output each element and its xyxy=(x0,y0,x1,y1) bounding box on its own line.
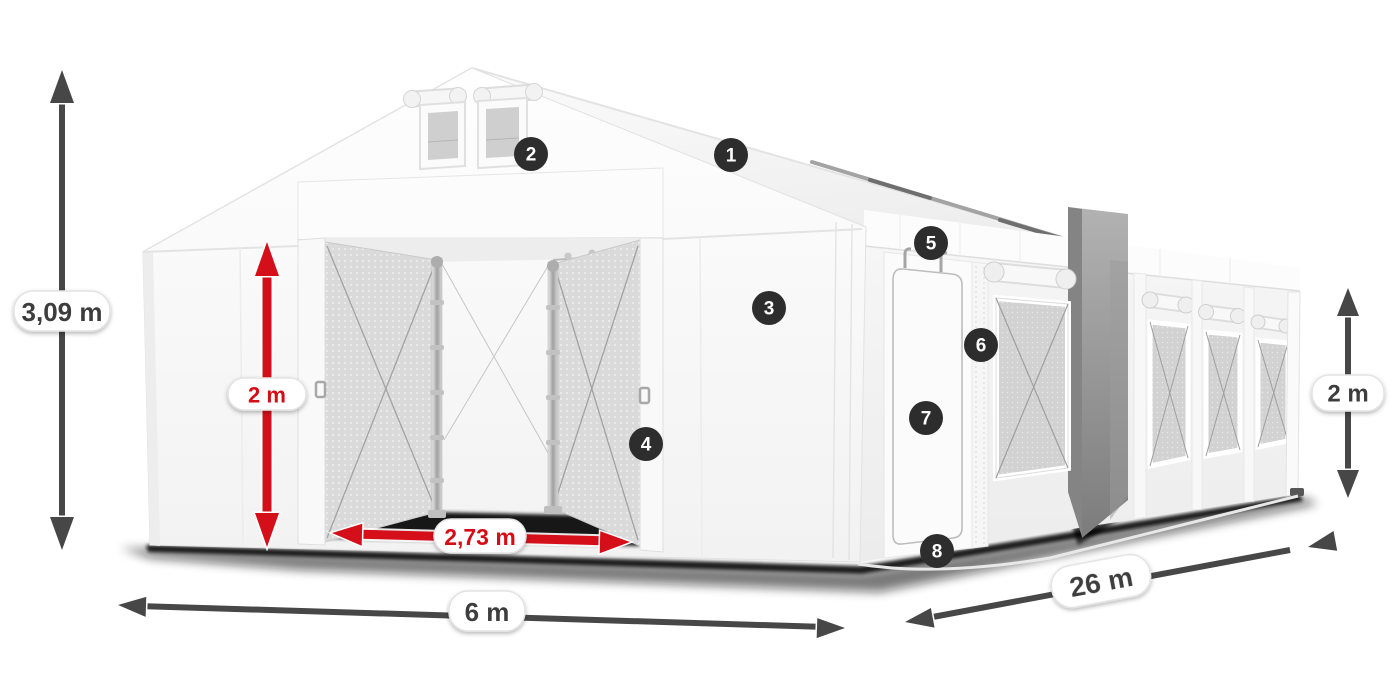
front-width-value: 6 m xyxy=(465,597,510,627)
door-height-value: 2 m xyxy=(248,383,286,408)
front-door-leaf-right xyxy=(544,240,640,546)
marker-hotspot-8[interactable]: 8 xyxy=(920,534,954,568)
side-height-value: 2 m xyxy=(1327,381,1368,408)
door-width-value: 2,73 m xyxy=(444,524,516,550)
measurement-label-front-width: 6 m xyxy=(449,591,525,631)
far-corner-post xyxy=(1286,292,1304,496)
measurement-label-side-height: 2 m xyxy=(1312,375,1384,411)
marker-6-number: 6 xyxy=(976,336,987,357)
side-open-section xyxy=(1068,207,1128,538)
side-frame-strip xyxy=(972,262,988,548)
measurement-label-door-height: 2 m xyxy=(228,378,306,410)
marker-hotspot-1[interactable]: 1 xyxy=(714,138,748,172)
marker-8-number: 8 xyxy=(932,542,943,563)
measurement-label-length: 26 m xyxy=(1048,551,1154,611)
marker-hotspot-4[interactable]: 4 xyxy=(629,427,663,461)
marker-1-number: 1 xyxy=(726,146,737,167)
marker-7-number: 7 xyxy=(921,409,932,430)
marker-4-number: 4 xyxy=(641,435,652,456)
measurement-label-total-height: 3,09 m xyxy=(14,291,110,331)
measurement-label-door-width: 2,73 m xyxy=(434,519,526,553)
tent-dimension-diagram: 3,09 m 2 m 2,73 m 6 m 26 m 2 m 1 2 3 4 5 xyxy=(0,0,1400,700)
tent-illustration: 3,09 m 2 m 2,73 m 6 m 26 m 2 m 1 2 3 4 5 xyxy=(0,0,1400,700)
marker-3-number: 3 xyxy=(764,299,775,320)
marker-5-number: 5 xyxy=(926,234,937,255)
marker-hotspot-3[interactable]: 3 xyxy=(752,291,786,325)
marker-hotspot-7[interactable]: 7 xyxy=(909,401,943,435)
front-door-leaf-left xyxy=(325,242,446,542)
total-height-value: 3,09 m xyxy=(22,297,103,327)
marker-hotspot-6[interactable]: 6 xyxy=(964,328,998,362)
marker-hotspot-2[interactable]: 2 xyxy=(514,137,548,171)
marker-2-number: 2 xyxy=(526,145,537,166)
front-door-jamb-right xyxy=(640,238,663,552)
marker-hotspot-5[interactable]: 5 xyxy=(914,226,948,260)
